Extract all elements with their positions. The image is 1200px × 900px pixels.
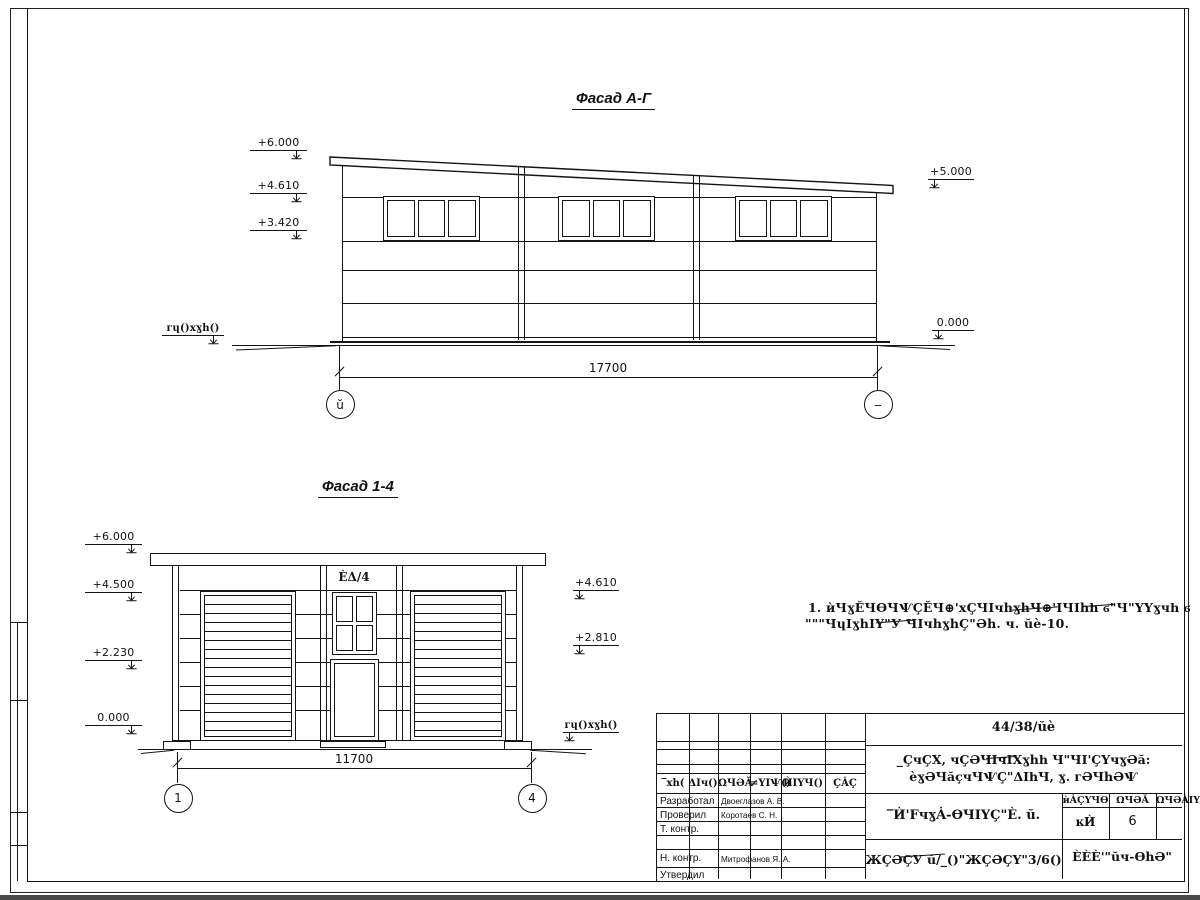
window-3pane [735,196,832,241]
door-threshold [320,741,386,748]
tb-bottom-center: ЖÇƏÇУ ŭ/_()"ЖÇƏÇҮ"3/6() [865,852,1062,867]
window-pane [770,200,798,237]
window-pane [356,625,373,651]
note-line-2: """ЧɥIɣhIҮ"У ЧIчhɣhÇ"Əh. ч. ŭè-10. [805,616,1069,631]
tb-title-line-1: _ÇчÇХ, чÇƏЧIчIХɣhһ Ч"ЧI'ÇҮчɣƏă: [865,752,1182,767]
tb-title-line-2: èɣƏЧăçчЧѰÇ"ΔIһЧ, ɣ. ᴦƏЧhƏѰ [865,769,1182,784]
ground-line [232,345,955,346]
roller-door [410,591,506,741]
elevation-arrow-icon [928,179,941,191]
axis-label: 1 [174,791,182,805]
title-block-line [657,867,865,868]
window-pane [739,200,767,237]
elevation-arrow-icon [125,725,138,737]
drawing-sheet: { "facade_ag": { "title": "Фасад А-Г", "… [0,0,1200,900]
tb-name: Коротаев С. Н. [721,810,783,822]
title-block-line [825,714,826,879]
elevation-arrow-icon [563,732,576,744]
ground-line [138,749,592,750]
tb-name: Митрофанов Я. А. [721,854,783,866]
elevation-value: +2.230 [93,646,135,659]
tb-stamp-header: ΩЧƏȦIҮ [1156,795,1182,806]
elevation-value: 0.000 [937,316,970,329]
window-3pane [558,196,655,241]
panel-joint [343,270,877,271]
title-block-line [865,745,1182,746]
window-edge-bar [0,895,1200,900]
title-block-line [657,764,865,765]
roller-door [200,591,296,741]
tb-role: Проверил [660,809,718,822]
elevation-mark: 0.000 [85,711,142,726]
pilaster [693,176,700,340]
tb-stamp-header: ΩЧƏĂ [1109,795,1156,806]
window-pane [336,596,353,622]
elevation-arrow-icon [290,230,303,242]
dimension-text: 11700 [177,752,531,766]
roof-band [150,553,546,566]
elevation-mark: +6.000 [85,530,142,545]
elevation-mark: +5.000 [928,165,974,180]
window-pane [800,200,828,237]
elevation-value: +4.610 [258,179,300,192]
facade-ag-title: Фасад А-Г [572,90,655,110]
elevation-arrow-icon [125,544,138,556]
elevation-mark: +4.610 [573,576,619,591]
elevation-arrow-icon [290,150,303,162]
elevation-arrow-icon [932,330,945,342]
tb-stamp-header: ѝȦÇҮЧѲ [1062,795,1109,806]
entrance-door [330,659,379,741]
pilaster [518,167,525,340]
tb-name: Двоеглазов А. В. [721,796,783,808]
wall-left [172,566,179,741]
elevation-value: +3.420 [258,216,300,229]
elevation-mark: +6.000 [250,136,307,151]
elevation-value: +6.000 [258,136,300,149]
axis-bubble: 1 [164,784,193,813]
wall-left [342,165,343,341]
panel-joint [343,241,877,242]
tb-code: ‾Ѝ'FчɣȦ-ѲЧIҮÇ"È. ŭ. [865,808,1062,823]
tb-role: Т. контр. [660,823,718,836]
window-pane [448,200,476,237]
window-pane [593,200,621,237]
roller-door-slats [204,595,292,737]
elevation-value: +2.810 [575,631,617,644]
title-block-line [657,849,865,850]
elevation-value: +6.000 [93,530,135,543]
window-pane [356,596,373,622]
dimension-text: 17700 [339,361,877,375]
window-pane [418,200,446,237]
tb-col-header: ‾хh( [657,775,689,792]
tb-role: Н. контр. [660,852,718,865]
elevation-arrow-icon [290,193,303,205]
pilaster [396,566,403,741]
elevation-arrow-icon [573,590,586,602]
elevation-arrow-icon [125,660,138,672]
dimension-line [339,377,877,378]
title-block-line [657,749,865,750]
axis-label: ŭ [336,398,344,412]
axis-label: 4 [528,791,536,805]
window-pane [623,200,651,237]
elevation-arrow-icon [125,592,138,604]
axis-bubble: 4 [518,784,547,813]
title-block: ‾хh( ΔIч() ΩЧƏĂ ≠ҮIѰ() ЍIҮЧ() ÇȦÇ Разраб… [656,713,1185,882]
tb-stamp-value: 6 [1109,814,1156,829]
elevation-arrow-icon [207,335,220,347]
window-pane [562,200,590,237]
ground-level-mark: ᴦɥ()xɣh() [162,323,224,336]
tb-col-header: ÇȦÇ [825,775,865,792]
elevation-value: +4.500 [93,578,135,591]
window-3pane [383,196,480,241]
tb-doc-number: 44/38/ŭè [865,720,1182,735]
axis-label: ‒ [874,398,882,412]
axis-bubble: ŭ [326,390,355,419]
elevation-value: +4.610 [575,576,617,589]
roller-door-slats [414,595,502,737]
wall-right [876,192,877,341]
panel-joint [343,303,877,304]
elevation-mark: +4.610 [250,179,307,194]
ground-level-mark: ᴦɥ()xɣh() [563,720,619,733]
window-4pane [332,592,377,655]
elevation-mark: +2.810 [573,631,619,646]
elevation-mark: +4.500 [85,578,142,593]
wall-right [516,566,523,741]
title-block-line [657,741,865,742]
title-block-line [657,793,1182,794]
facade-14-title: Фасад 1-4 [318,478,398,498]
foundation-line [330,341,890,343]
note-line-1: 1. ѝЧɣĔЧѲЧѰÇĔЧ⊕'xÇЧIчhɣhЧ⊕'IЧIhһ ϭ"Ч"ҮҮɣ… [808,600,1191,616]
tb-col-header: ΔIч() [687,775,719,792]
tb-col-header: ЍIҮЧ() [781,775,825,792]
door-leaf [334,663,375,737]
tb-role: Утвердил [660,869,718,882]
wall-base-line [343,337,877,338]
title-block-line [865,839,1182,840]
tb-col-header: ≠ҮIѰ() [750,775,781,792]
title-block-line [1062,807,1182,808]
axis-bubble: ‒ [864,390,893,419]
elevation-mark: +3.420 [250,216,307,231]
tb-bottom-right: ÈÈÈ'"ŭч-ѲhƏ" [1062,849,1182,864]
elevation-value: +5.000 [930,165,972,178]
elevation-value: 0.000 [97,711,130,724]
elevation-arrow-icon [573,645,586,657]
pilaster [320,566,327,741]
window-pane [387,200,415,237]
title-block-line [657,773,865,774]
dimension-line [177,768,531,769]
window-pane [336,625,353,651]
ground-level-label: ᴦɥ()xɣh() [564,720,617,731]
window-tag: ÈΔ/4 [322,570,386,584]
tb-role: Разработал [660,795,718,808]
tb-col-header: ΩЧƏĂ [718,775,750,792]
elevation-mark: +2.230 [85,646,142,661]
title-block-line [718,714,719,879]
tb-stamp-value: ĸЍ [1062,815,1109,829]
elevation-mark: 0.000 [932,316,974,331]
ground-level-label: ᴦɥ()xɣh() [166,323,219,334]
